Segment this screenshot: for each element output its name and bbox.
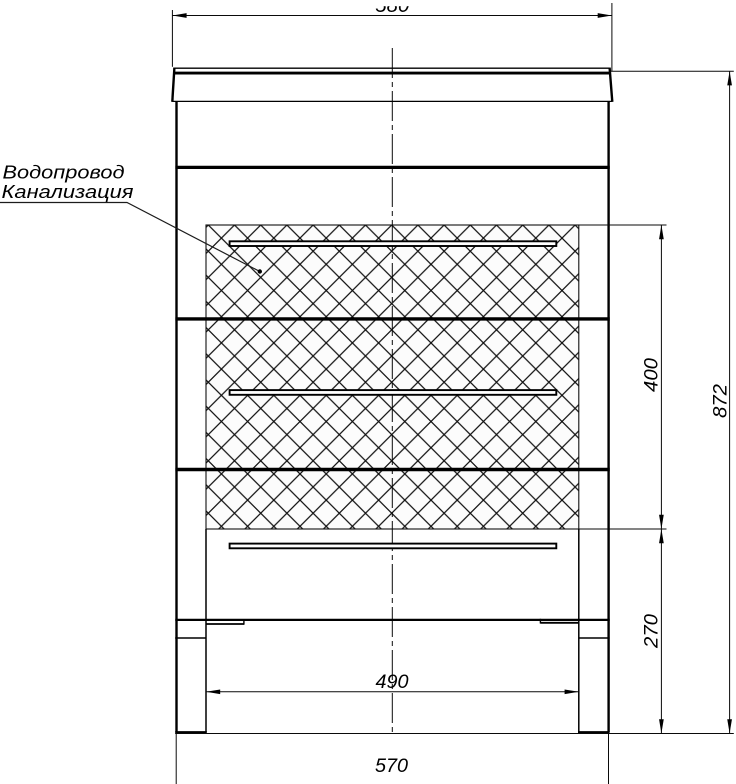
svg-text:490: 490 (376, 672, 409, 693)
svg-text:872: 872 (709, 384, 731, 418)
svg-text:400: 400 (641, 358, 663, 392)
svg-text:270: 270 (641, 614, 663, 649)
svg-text:Канализация: Канализация (2, 181, 134, 202)
svg-text:570: 570 (375, 756, 408, 777)
svg-text:Водопровод: Водопровод (3, 161, 125, 182)
